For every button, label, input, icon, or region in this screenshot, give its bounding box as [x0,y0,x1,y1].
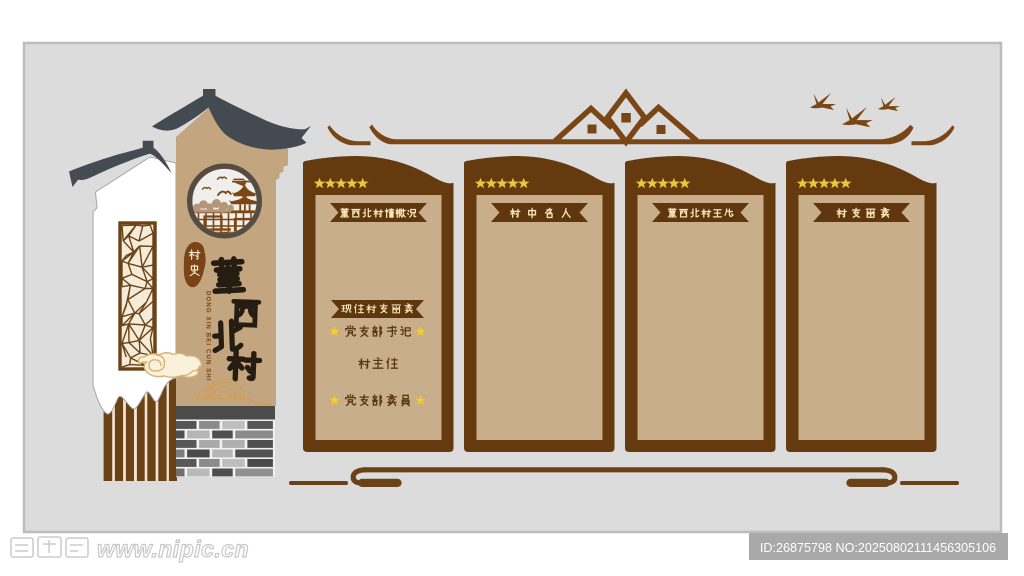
svg-text:DONG XIN BEI CUN SHI: DONG XIN BEI CUN SHI [205,291,212,382]
svg-text:www.nipic.cn: www.nipic.cn [97,536,249,562]
svg-text:ID:26875798 NO:202508021114563: ID:26875798 NO:20250802111456305106 [760,541,996,555]
